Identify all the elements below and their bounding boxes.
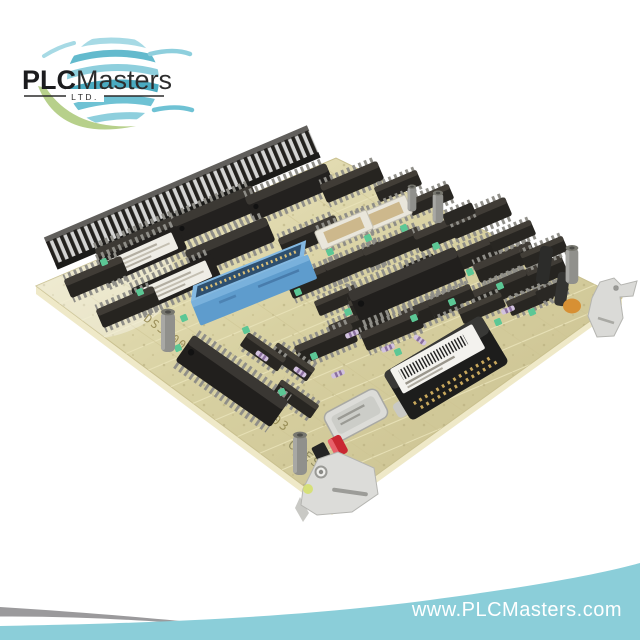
website-url: www.PLCMasters.com: [412, 599, 622, 622]
standoff-post: [433, 190, 444, 223]
standoff-post: [161, 309, 175, 352]
product-photo: DS3800HMPJ1A1D 6BA03 C-ESS: [0, 0, 640, 640]
brand-logo: PLCMasters LTD.: [14, 26, 214, 141]
website-banner: [0, 550, 640, 640]
standoff-post: [408, 184, 417, 211]
standoff-post: [566, 245, 579, 284]
brand-suffix: LTD.: [71, 92, 99, 102]
standoff-post: [293, 432, 307, 475]
